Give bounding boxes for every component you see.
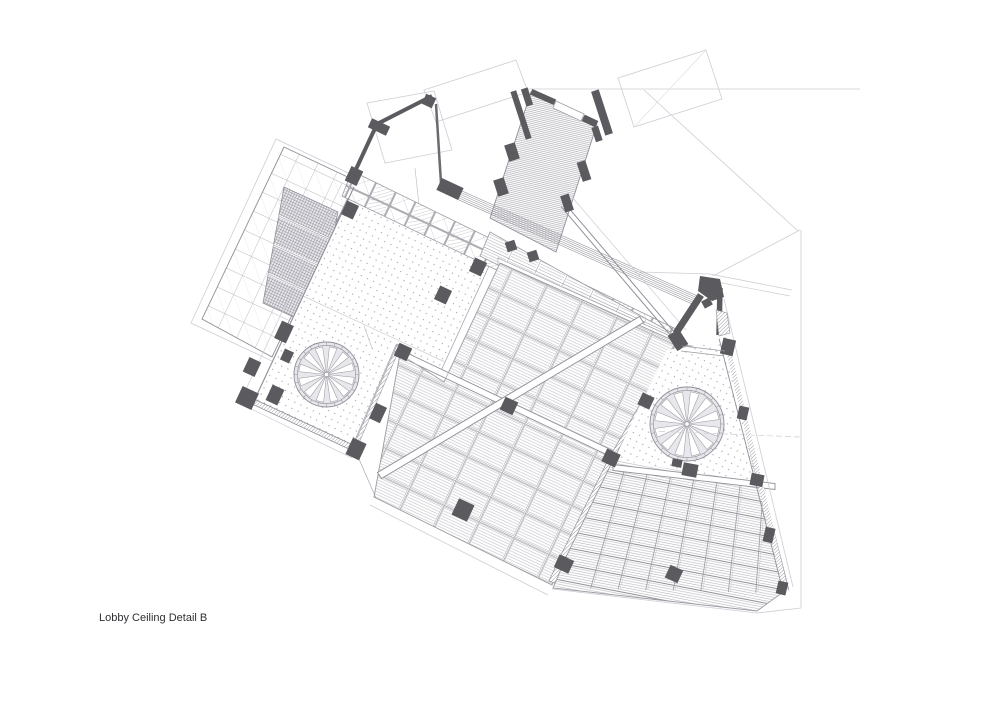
- svg-text:Lobby Ceiling Detail B: Lobby Ceiling Detail B: [99, 612, 207, 624]
